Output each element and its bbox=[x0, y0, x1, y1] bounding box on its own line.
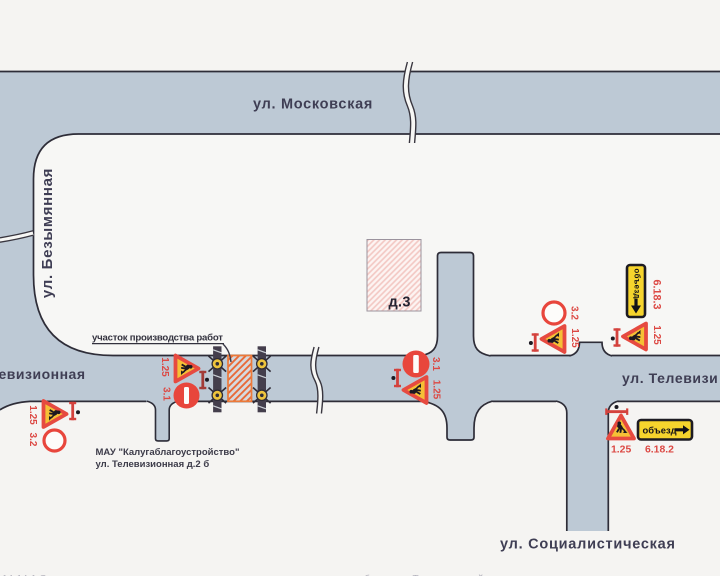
svg-text:объезд: объезд bbox=[633, 269, 642, 299]
svg-text:д.3: д.3 bbox=[389, 295, 411, 311]
svg-text:3.1: 3.1 bbox=[161, 387, 172, 401]
svg-text:1.25: 1.25 bbox=[611, 445, 631, 456]
svg-text:1.25: 1.25 bbox=[431, 380, 442, 400]
svg-text:6.18.2: 6.18.2 bbox=[645, 445, 674, 456]
svg-text:3.2: 3.2 bbox=[569, 306, 580, 320]
svg-text:объезд: объезд bbox=[643, 425, 677, 436]
svg-text:1.25: 1.25 bbox=[159, 357, 170, 377]
svg-text:участок производства работ: участок производства работ bbox=[92, 333, 223, 344]
svg-text:МАУ "Калугаблагоустройство": МАУ "Калугаблагоустройство" bbox=[96, 447, 240, 458]
svg-text:1.25: 1.25 bbox=[27, 405, 38, 425]
svg-text:ул. Безымянная: ул. Безымянная bbox=[39, 168, 56, 298]
svg-text:1.25: 1.25 bbox=[569, 328, 580, 348]
svg-text:ул. Социалистическая: ул. Социалистическая bbox=[500, 537, 676, 553]
svg-text:ул. Телевизионная: ул. Телевизионная bbox=[0, 366, 86, 382]
svg-text:6.18.3: 6.18.3 bbox=[651, 279, 663, 309]
svg-text:3.1: 3.1 bbox=[430, 357, 441, 371]
svg-text:3.2: 3.2 bbox=[27, 433, 38, 447]
svg-text:ул. Московская: ул. Московская bbox=[253, 97, 373, 113]
svg-text:ул. Телевизи: ул. Телевизи bbox=[622, 370, 718, 386]
svg-text:ул. Телевизионная д.2 б: ул. Телевизионная д.2 б bbox=[96, 459, 210, 470]
svg-text:1.25: 1.25 bbox=[651, 325, 662, 345]
